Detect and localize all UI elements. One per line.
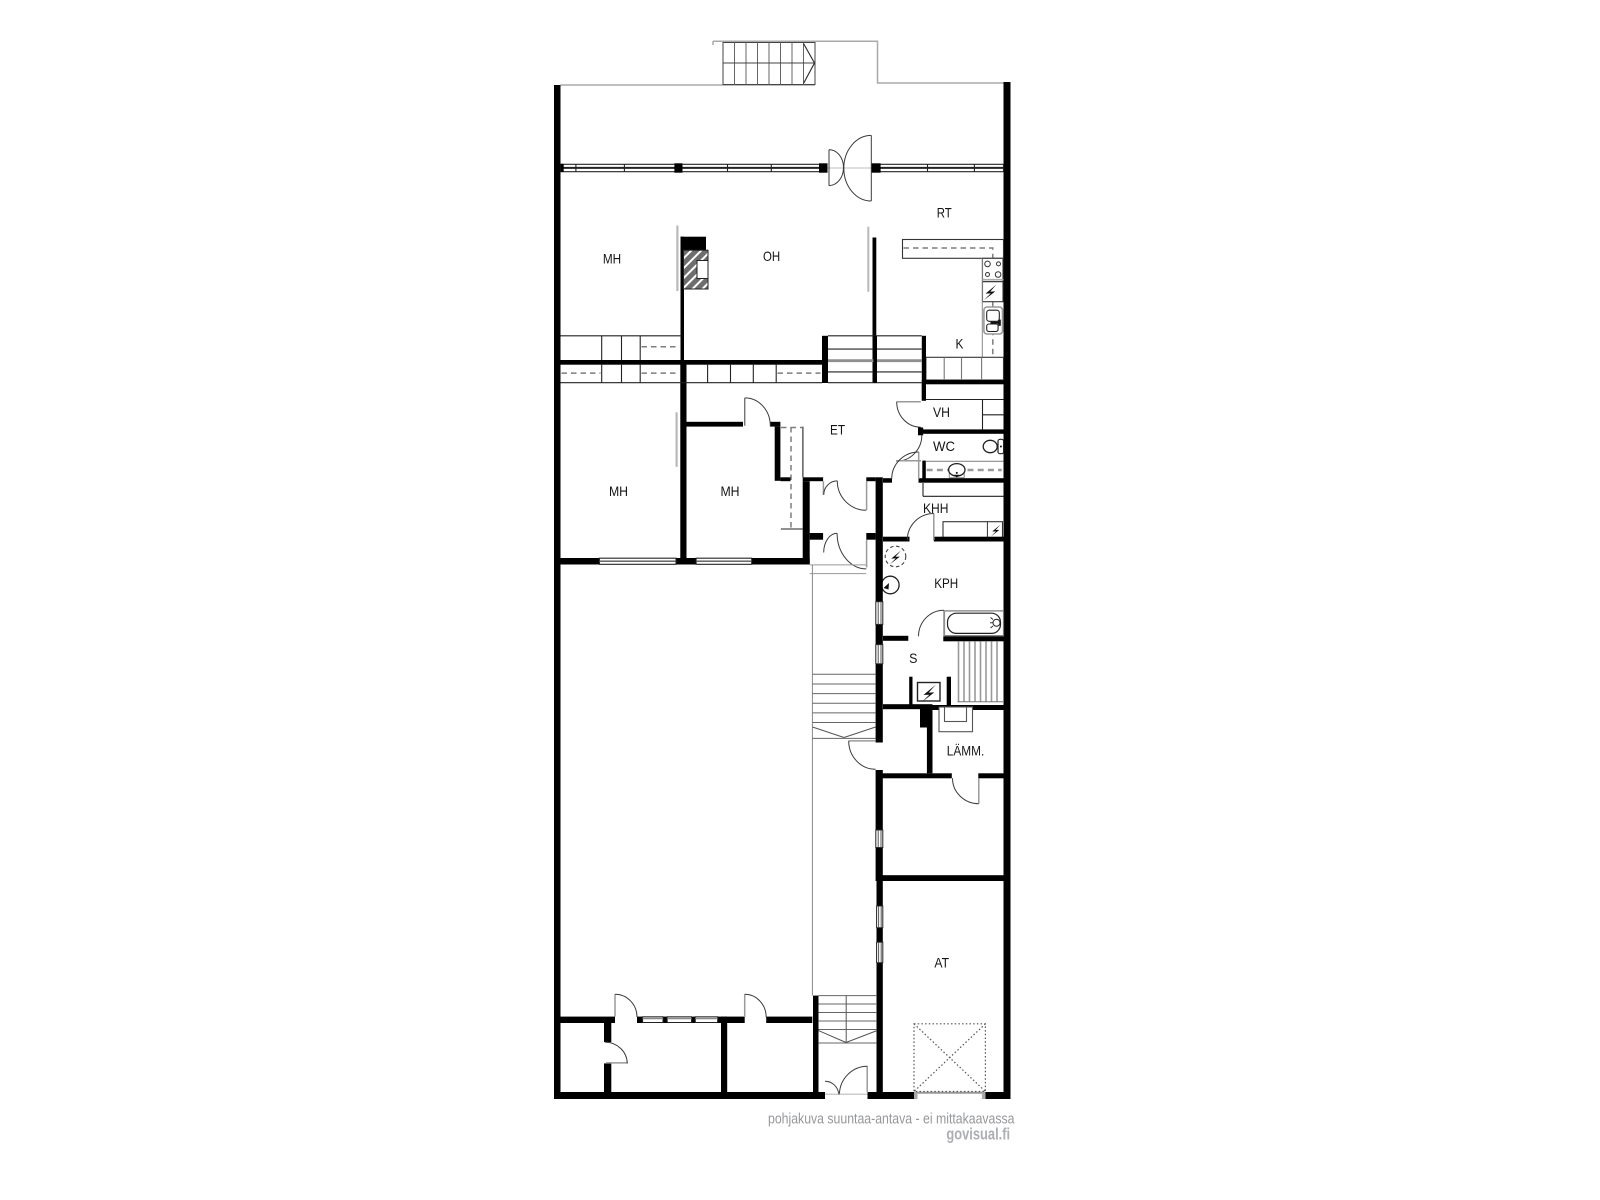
svg-text:WC: WC [933, 438, 955, 454]
svg-text:govisual.fi: govisual.fi [946, 1125, 1010, 1144]
svg-text:S: S [909, 650, 917, 666]
svg-text:MH: MH [609, 483, 628, 499]
svg-text:LÄMM.: LÄMM. [947, 743, 985, 759]
svg-text:AT: AT [934, 955, 949, 971]
svg-text:KHH: KHH [923, 500, 949, 516]
svg-text:ET: ET [830, 422, 845, 438]
svg-text:OH: OH [763, 248, 780, 264]
svg-text:RT: RT [937, 205, 952, 221]
svg-text:KPH: KPH [934, 575, 958, 591]
svg-text:MH: MH [603, 251, 621, 267]
svg-text:MH: MH [720, 483, 739, 499]
svg-text:K: K [955, 335, 963, 351]
svg-text:VH: VH [933, 404, 950, 420]
